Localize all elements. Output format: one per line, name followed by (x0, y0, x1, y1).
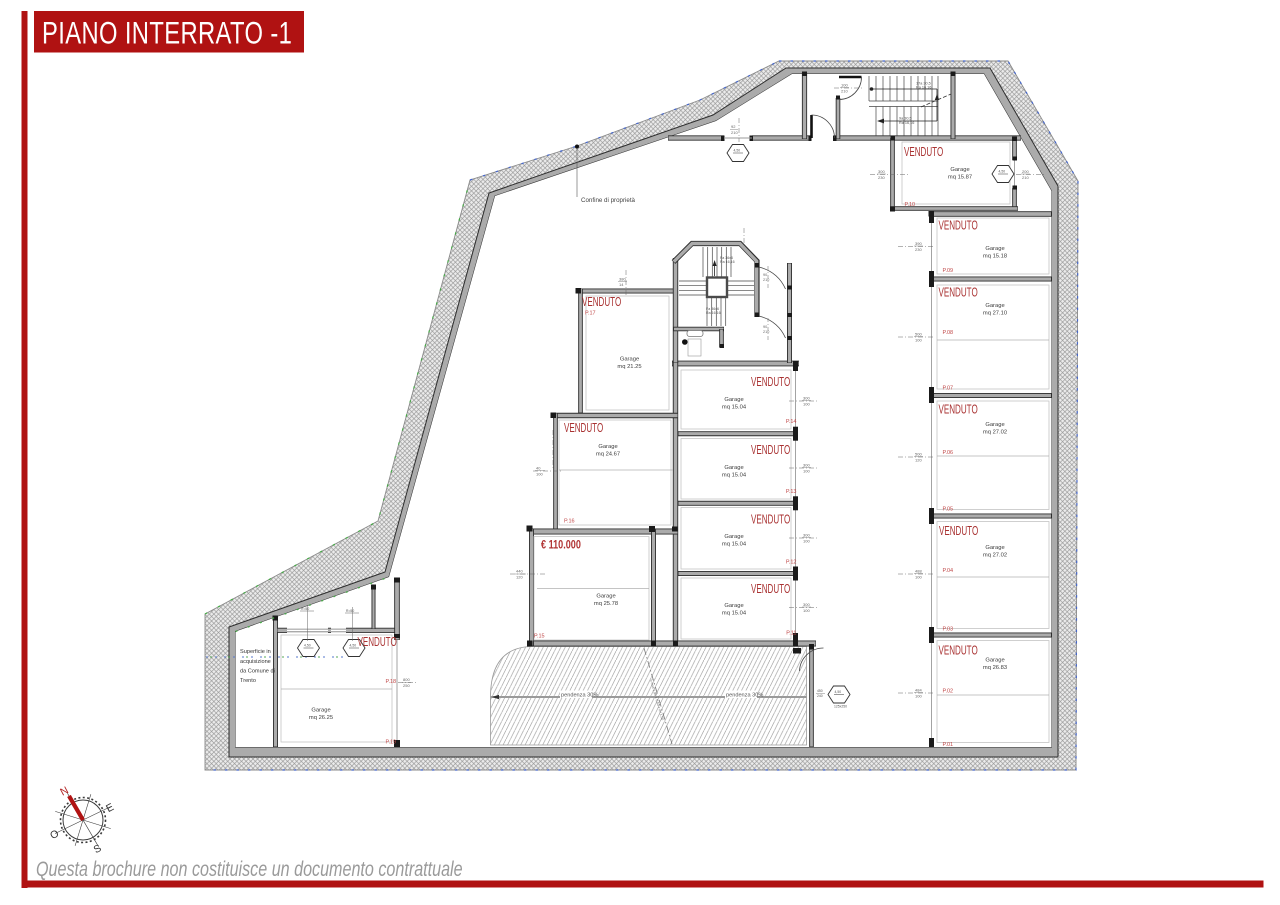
svg-text:4,50: 4,50 (734, 149, 741, 153)
svg-text:484: 484 (915, 688, 922, 693)
svg-text:P.16: P.16 (564, 519, 575, 525)
svg-text:230: 230 (878, 175, 885, 180)
svg-text:VENDUTO: VENDUTO (564, 421, 603, 435)
svg-text:240: 240 (817, 694, 823, 698)
svg-text:90: 90 (763, 273, 767, 277)
svg-text:100: 100 (803, 469, 810, 474)
svg-text:390: 390 (915, 241, 922, 246)
svg-text:VENDUTO: VENDUTO (358, 635, 397, 649)
svg-text:P.04: P.04 (943, 568, 954, 574)
svg-text:210: 210 (731, 130, 738, 135)
svg-text:P.03: P.03 (943, 627, 954, 633)
svg-text:mq 24.67: mq 24.67 (596, 452, 620, 458)
svg-text:pendenza 30%: pendenza 30% (726, 693, 763, 699)
svg-text:Garage: Garage (620, 357, 639, 363)
svg-text:acquisizione: acquisizione (240, 659, 271, 665)
svg-text:mq 27.10: mq 27.10 (983, 311, 1007, 317)
svg-text:Superficie in: Superficie in (240, 649, 271, 655)
svg-text:9a 30,5: 9a 30,5 (899, 117, 912, 121)
svg-text:120: 120 (915, 458, 922, 463)
svg-text:230: 230 (915, 247, 922, 252)
svg-text:P.13: P.13 (786, 489, 797, 495)
svg-text:90: 90 (763, 325, 767, 329)
svg-text:500: 500 (915, 332, 922, 337)
svg-text:mq 27.02: mq 27.02 (983, 553, 1007, 559)
svg-text:100: 100 (803, 539, 810, 544)
svg-text:Ra 16,16: Ra 16,16 (899, 121, 914, 125)
svg-text:300: 300 (803, 533, 810, 538)
svg-text:Garage: Garage (950, 167, 969, 173)
svg-text:mq 15.18: mq 15.18 (983, 254, 1007, 260)
svg-text:Ra 16,16: Ra 16,16 (706, 311, 721, 315)
svg-text:4,50: 4,50 (304, 644, 311, 648)
svg-text:Garage: Garage (598, 444, 617, 450)
svg-text:mq 26.83: mq 26.83 (983, 665, 1007, 671)
svg-text:VENDUTO: VENDUTO (751, 513, 790, 527)
svg-text:PIANO INTERRATO -1: PIANO INTERRATO -1 (42, 15, 292, 50)
svg-text:4,50: 4,50 (350, 644, 357, 648)
svg-text:P.09: P.09 (943, 268, 954, 274)
svg-text:250: 250 (403, 683, 410, 688)
svg-text:VENDUTO: VENDUTO (751, 443, 790, 457)
svg-text:P.12: P.12 (786, 560, 797, 566)
svg-text:mq 27.02: mq 27.02 (983, 430, 1007, 436)
svg-text:P.06: P.06 (943, 450, 954, 456)
svg-text:Garage: Garage (724, 465, 743, 471)
svg-text:VENDUTO: VENDUTO (904, 145, 943, 159)
svg-text:Garage: Garage (596, 594, 615, 600)
svg-text:P.14: P.14 (786, 419, 797, 425)
svg-text:R=50: R=50 (346, 609, 354, 613)
svg-text:488: 488 (915, 569, 922, 574)
svg-text:VENDUTO: VENDUTO (751, 375, 790, 389)
svg-text:14: 14 (619, 282, 624, 287)
svg-text:500: 500 (915, 452, 922, 457)
svg-text:mq 26.25: mq 26.25 (309, 715, 333, 721)
svg-text:210: 210 (763, 278, 769, 282)
svg-text:P.18: P.18 (386, 679, 397, 685)
svg-text:210: 210 (1022, 175, 1029, 180)
svg-text:120: 120 (516, 575, 523, 580)
svg-text:800: 800 (403, 677, 410, 682)
svg-text:pendenza 30%: pendenza 30% (561, 693, 598, 699)
svg-text:Garage: Garage (724, 603, 743, 609)
svg-text:mq 15.04: mq 15.04 (722, 405, 747, 411)
svg-text:mq 15.04: mq 15.04 (722, 611, 747, 617)
svg-text:VENDUTO: VENDUTO (939, 524, 978, 538)
svg-text:€ 110.000: € 110.000 (541, 540, 581, 552)
svg-text:440: 440 (516, 569, 523, 574)
svg-text:100: 100 (915, 694, 922, 699)
svg-text:VENDUTO: VENDUTO (939, 403, 978, 417)
svg-text:mq 15.04: mq 15.04 (722, 542, 747, 548)
svg-text:P.11: P.11 (786, 631, 796, 637)
svg-text:VENDUTO: VENDUTO (939, 219, 978, 233)
svg-text:mq 25.78: mq 25.78 (594, 601, 618, 607)
svg-text:210: 210 (841, 89, 848, 94)
svg-text:450: 450 (817, 689, 823, 693)
svg-text:4,50: 4,50 (835, 690, 842, 694)
svg-text:Confine di proprietà: Confine di proprietà (581, 197, 636, 204)
svg-text:Garage: Garage (311, 708, 330, 714)
svg-text:200: 200 (1022, 169, 1029, 174)
svg-text:P.02: P.02 (943, 689, 954, 695)
svg-text:P.19: P.19 (386, 740, 397, 746)
svg-text:100: 100 (841, 83, 848, 88)
svg-text:300: 300 (803, 602, 810, 607)
svg-text:Ra 16,16: Ra 16,16 (916, 86, 931, 90)
svg-text:P.07: P.07 (943, 386, 954, 392)
svg-text:Questa brochure non costituisc: Questa brochure non costituisce un docum… (36, 858, 463, 882)
svg-text:P.05: P.05 (943, 507, 954, 513)
svg-text:210: 210 (763, 330, 769, 334)
svg-text:100: 100 (915, 338, 922, 343)
svg-text:92: 92 (731, 124, 736, 129)
svg-text:mq 21.25: mq 21.25 (617, 364, 641, 370)
svg-text:P.01: P.01 (943, 742, 954, 748)
svg-text:100: 100 (536, 472, 543, 477)
svg-text:P.08: P.08 (943, 330, 954, 336)
svg-text:Trento: Trento (240, 678, 256, 684)
svg-text:Garage: Garage (985, 303, 1004, 309)
svg-text:P.17: P.17 (585, 311, 596, 317)
svg-text:R=50: R=50 (301, 607, 309, 611)
svg-text:P.15: P.15 (534, 634, 545, 640)
svg-text:Garage: Garage (724, 397, 743, 403)
svg-text:100: 100 (915, 575, 922, 580)
svg-text:300: 300 (878, 169, 885, 174)
svg-text:VENDUTO: VENDUTO (939, 286, 978, 300)
svg-text:Garage: Garage (724, 534, 743, 540)
svg-text:125x250: 125x250 (834, 705, 847, 709)
svg-text:da Comune di: da Comune di (240, 669, 275, 675)
svg-text:VENDUTO: VENDUTO (582, 295, 621, 309)
svg-text:Garage: Garage (985, 658, 1004, 664)
svg-text:40: 40 (536, 466, 541, 471)
svg-text:Garage: Garage (985, 422, 1004, 428)
svg-text:mq 15.04: mq 15.04 (722, 473, 747, 479)
svg-text:P.10: P.10 (905, 202, 916, 208)
svg-text:380: 380 (619, 277, 626, 282)
svg-text:Garage: Garage (985, 246, 1004, 252)
svg-text:VENDUTO: VENDUTO (939, 644, 978, 658)
svg-text:VENDUTO: VENDUTO (751, 582, 790, 596)
svg-text:300: 300 (803, 463, 810, 468)
svg-text:100: 100 (803, 402, 810, 407)
svg-text:4,50: 4,50 (999, 170, 1006, 174)
svg-text:mq 15.87: mq 15.87 (948, 175, 972, 181)
svg-text:300: 300 (803, 396, 810, 401)
svg-text:Ra 16,16: Ra 16,16 (720, 260, 735, 264)
svg-text:Garage: Garage (985, 545, 1004, 551)
svg-text:100: 100 (803, 608, 810, 613)
